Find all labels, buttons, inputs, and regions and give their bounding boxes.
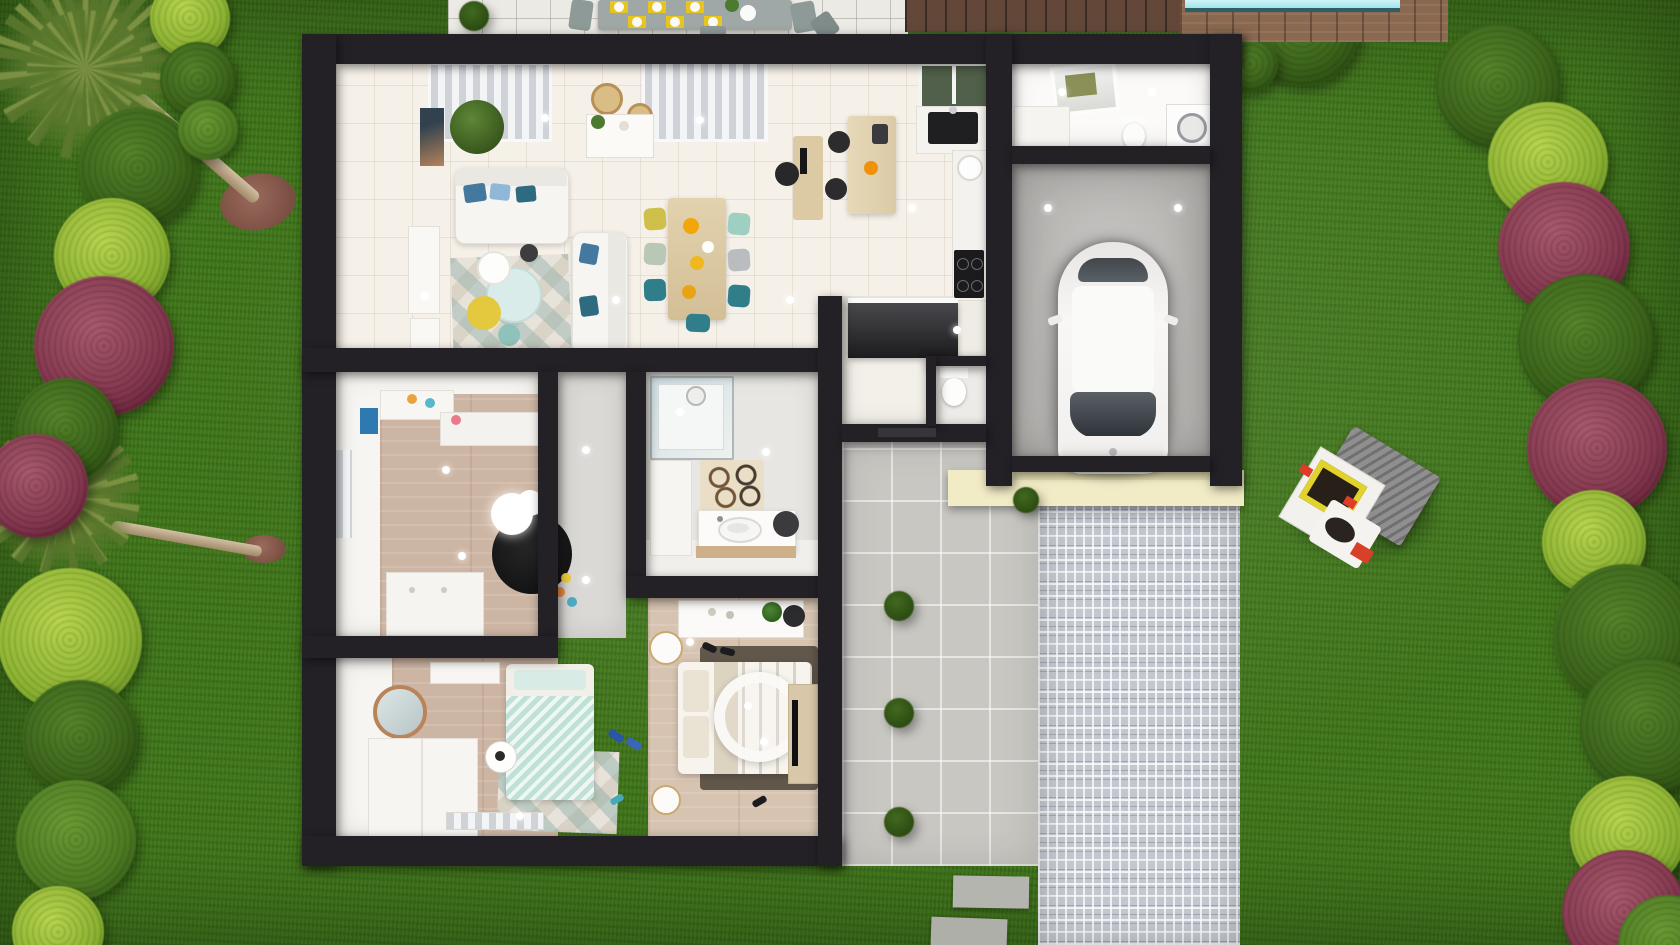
dining-chair-sage[interactable] [643, 242, 666, 265]
ceiling-light-17 [1148, 88, 1156, 96]
bedroom2-lamp [495, 751, 505, 761]
bathroom-sink-basin [727, 523, 749, 533]
wall-wing-right [1210, 34, 1242, 486]
terrace-bush-4 [1013, 487, 1039, 513]
plate-3 [690, 2, 700, 12]
dining-chair-mint[interactable] [727, 212, 751, 236]
pitcher-yellow-3 [682, 285, 696, 299]
pitcher-yellow-2 [690, 256, 704, 270]
ceiling-light-15 [516, 812, 524, 820]
wall-wicker-deco-1 [591, 83, 623, 115]
master-tv-screen [792, 700, 798, 766]
dresser-knob-1 [409, 587, 415, 593]
wc-toilet[interactable] [942, 378, 966, 406]
serving-plate [740, 5, 756, 21]
vanity-wood-ledge [696, 546, 796, 558]
car-windshield [1070, 392, 1156, 438]
arc-floor-lamp[interactable] [477, 251, 511, 285]
car-roof [1072, 286, 1154, 394]
car-rear-window [1078, 258, 1148, 282]
entry-closet[interactable] [848, 302, 958, 358]
burner-3 [957, 280, 969, 292]
wall-wc-left [926, 356, 936, 426]
wall-bottom [302, 836, 842, 866]
terrace-bush-1 [884, 591, 914, 621]
patio-bush [459, 1, 489, 31]
tv-shelf-1[interactable] [408, 226, 440, 314]
master-pillow-1 [683, 670, 709, 712]
wall-wing-bottom [1012, 456, 1210, 472]
dining-plate [702, 241, 714, 253]
ceiling-light-11 [686, 638, 694, 646]
pitcher-yellow-1 [683, 218, 699, 234]
bedroom2-pillow [514, 670, 586, 690]
outdoor-chair-left[interactable] [568, 0, 594, 31]
laundry-cabinet[interactable] [1014, 106, 1070, 150]
master-plant [762, 602, 782, 622]
pillow-blue-2 [489, 183, 511, 201]
ceiling-light-2 [541, 114, 549, 122]
wall-top [336, 34, 1242, 64]
master-deco-1 [708, 608, 716, 616]
wall-left [302, 34, 336, 866]
kids-toy-2 [425, 398, 435, 408]
ceiling-light-7 [582, 446, 590, 454]
bath-mat [700, 460, 764, 510]
burner-2 [971, 258, 983, 270]
kitchen-window-bar [952, 62, 956, 104]
bedroom2-radiator [446, 812, 544, 830]
ceiling-light-12 [760, 738, 768, 746]
wall-kids-bedroom2 [302, 636, 558, 658]
ceiling-light-8 [582, 576, 590, 584]
dresser-knob-2 [441, 587, 447, 593]
master-side-table-1[interactable] [649, 631, 683, 665]
skylight-pane [1065, 72, 1097, 97]
ceiling-light-20 [953, 326, 961, 334]
coffee-table-yellow[interactable] [467, 296, 501, 330]
pillow-teal-2 [579, 295, 600, 317]
floorplan-canvas [0, 0, 1680, 945]
ceiling-light-4 [696, 116, 704, 124]
ceiling-light-14 [458, 552, 466, 560]
wall-living-bedrooms [302, 348, 820, 372]
dining-chair-teal-1[interactable] [644, 279, 667, 302]
water-heater [957, 155, 983, 181]
wall-kids-right [538, 372, 558, 638]
entry-door[interactable] [878, 428, 936, 437]
plate-2 [652, 2, 662, 12]
sink-faucet [949, 106, 957, 114]
ceiling-light-10 [762, 448, 770, 456]
wc-toilet-tank [940, 368, 968, 378]
bathroom-cabinet[interactable] [650, 460, 692, 556]
bedroom2-duvet-teal [506, 696, 594, 800]
ceiling-light-5 [786, 296, 794, 304]
dining-chair-gray[interactable] [727, 248, 750, 271]
plate-5 [670, 17, 680, 27]
ceiling-light-3 [612, 296, 620, 304]
side-table-dark[interactable] [520, 244, 538, 262]
plate-4 [632, 17, 642, 27]
kids-dresser[interactable] [386, 572, 484, 636]
fruit-bowl [864, 161, 878, 175]
tree-left-4 [178, 100, 238, 160]
desk-monitor [800, 148, 807, 174]
entry-closet-top [848, 298, 958, 303]
kids-toy-3 [451, 415, 461, 425]
laundry-basket[interactable] [773, 511, 799, 537]
kids-toy-1 [407, 394, 417, 404]
wall-laundry [1012, 146, 1210, 164]
master-side-table-2[interactable] [651, 785, 681, 815]
kids-curtain [336, 450, 352, 538]
sofa-right-back [608, 232, 626, 352]
bathroom-faucet [717, 516, 723, 522]
master-pendant-dot [744, 702, 752, 710]
pillow-blue-3 [578, 243, 599, 266]
pillow-blue-1 [463, 183, 487, 204]
burner-1 [957, 258, 969, 270]
ceiling-light-13 [442, 466, 450, 474]
stepping-slab-1 [953, 875, 1030, 908]
terrace-bush-2 [884, 698, 914, 728]
car-logo [1109, 448, 1117, 456]
burner-4 [971, 280, 983, 292]
wall-divider-garage [986, 34, 1012, 486]
master-pillow-2 [683, 716, 709, 758]
kids-wall-art [358, 406, 380, 436]
console-deco [619, 121, 629, 131]
desk-chair[interactable] [775, 162, 799, 186]
driveway-cobblestone [1038, 505, 1240, 945]
tree-left-11 [16, 780, 136, 900]
dining-chair-yellow[interactable] [643, 207, 666, 230]
dining-chair-teal-2[interactable] [727, 284, 750, 307]
coffee-machine [872, 124, 888, 144]
plate-1 [614, 2, 624, 12]
wall-terrace [818, 296, 842, 866]
washer-drum [1177, 113, 1207, 143]
ceiling-light-6 [908, 204, 916, 212]
master-bag [783, 605, 805, 627]
bedroom2-shelf[interactable] [430, 662, 500, 684]
ceiling-light-1 [421, 292, 429, 300]
pool-deck-dark [905, 0, 1190, 32]
kitchen-sink[interactable] [928, 112, 978, 144]
terrace-bush-3 [884, 807, 914, 837]
potted-plant-living[interactable] [450, 100, 504, 154]
wall-master-top [626, 576, 818, 598]
bar-stool-2[interactable] [825, 178, 847, 200]
kids-toy-5 [567, 597, 577, 607]
stepping-slab-2 [930, 917, 1007, 945]
ceiling-light-16 [1058, 88, 1066, 96]
tree-left-10 [22, 680, 138, 796]
coffee-table-teal[interactable] [498, 324, 520, 346]
shower-head [686, 386, 706, 406]
wall-bathroom-left [626, 372, 646, 578]
kids-toy-7 [561, 573, 571, 583]
pool-edge [1185, 8, 1400, 12]
bar-stool-1[interactable] [828, 131, 850, 153]
wardrobe-divider [421, 738, 423, 838]
ceiling-light-18 [1044, 204, 1052, 212]
bedroom2-mirror[interactable] [373, 685, 427, 739]
living-window-2[interactable] [642, 60, 768, 142]
ceiling-light-19 [1174, 204, 1182, 212]
dining-chair-teal-3[interactable] [686, 314, 711, 333]
wall-art-living [420, 108, 444, 166]
pillow-teal-1 [515, 185, 536, 203]
master-deco-2 [726, 611, 734, 619]
console-plant [591, 115, 605, 129]
ceiling-light-9 [676, 408, 684, 416]
